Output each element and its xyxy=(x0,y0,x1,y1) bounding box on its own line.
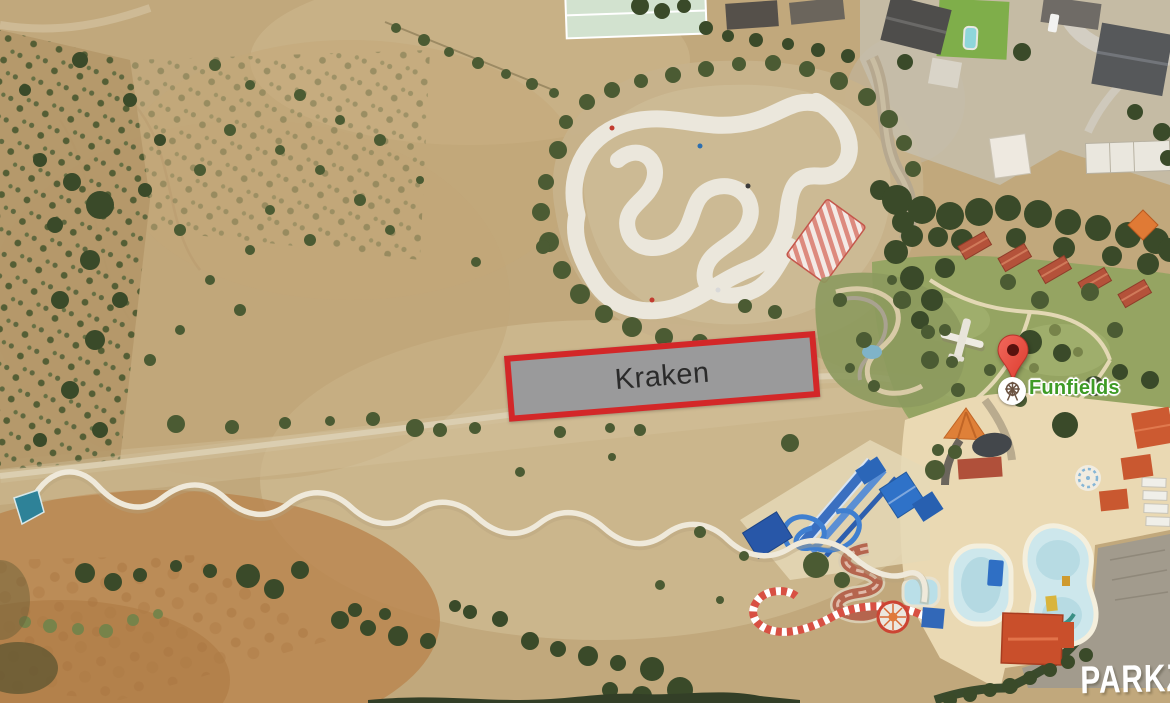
kraken-annotation-label: Kraken xyxy=(614,356,711,397)
funfields-place-label[interactable]: Funfields xyxy=(1029,377,1120,400)
satellite-map: Kraken Funfields PARKZ xyxy=(0,0,1170,703)
carousel-ride xyxy=(878,602,908,632)
parkz-watermark: PARKZ xyxy=(1080,657,1170,703)
splash-pad xyxy=(1075,465,1101,491)
funfields-badge[interactable] xyxy=(998,377,1026,405)
ferris-wheel-icon xyxy=(1003,381,1022,402)
